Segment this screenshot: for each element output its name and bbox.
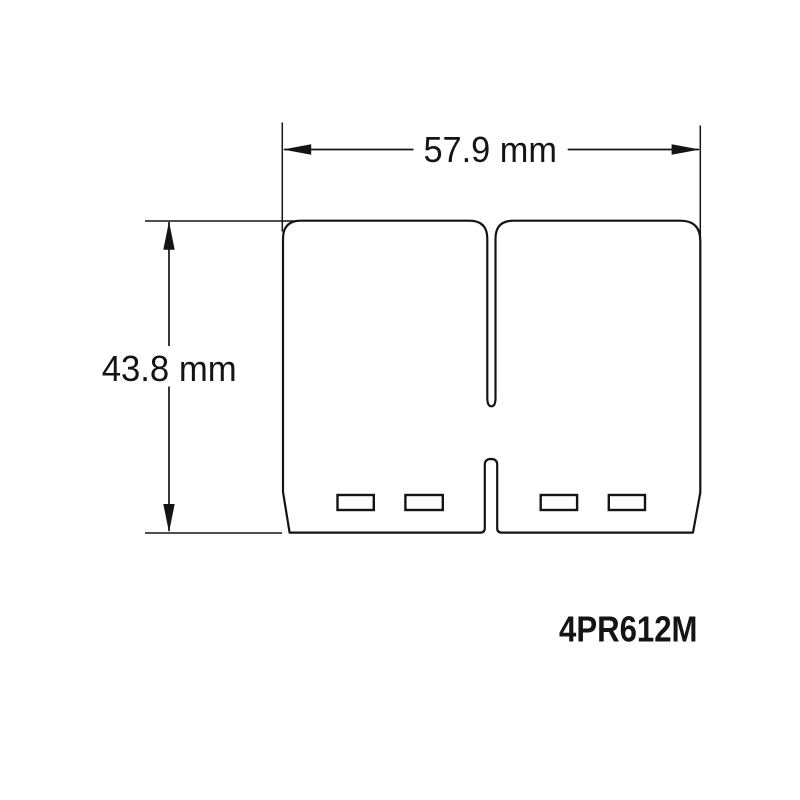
svg-text:57.9 mm: 57.9 mm [423, 129, 557, 170]
svg-text:43.8 mm: 43.8 mm [102, 348, 237, 389]
svg-text:4PR612M: 4PR612M [559, 609, 698, 650]
